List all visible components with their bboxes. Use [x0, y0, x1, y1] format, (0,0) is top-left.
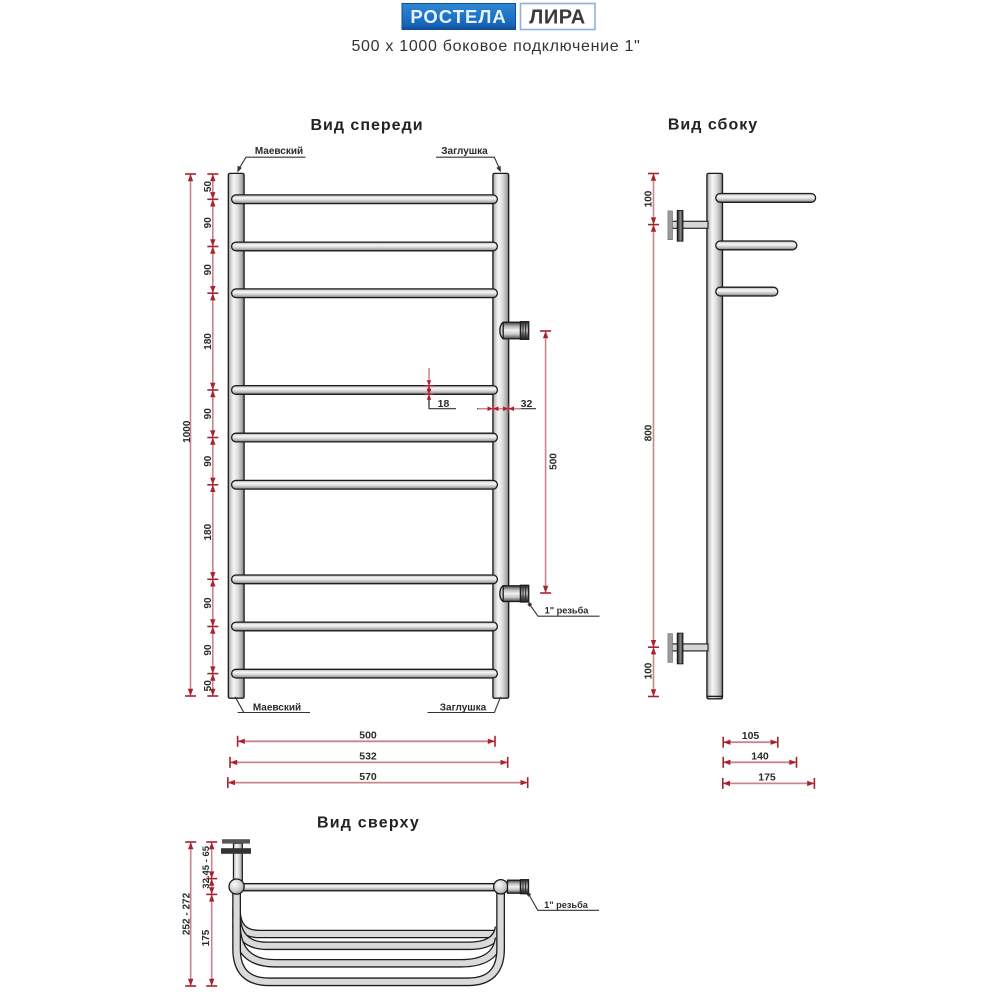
svg-text:90: 90	[203, 644, 214, 656]
svg-text:140: 140	[751, 750, 769, 762]
svg-text:90: 90	[203, 455, 214, 467]
svg-text:1" резьба: 1" резьба	[544, 900, 589, 910]
svg-text:1" резьба: 1" резьба	[545, 606, 590, 616]
svg-text:532: 532	[359, 751, 377, 763]
svg-text:Вид сбоку: Вид сбоку	[668, 117, 758, 134]
svg-text:180: 180	[203, 333, 214, 350]
svg-text:Заглушка: Заглушка	[441, 146, 488, 157]
svg-text:1000: 1000	[182, 420, 193, 443]
svg-text:32.45 - 65: 32.45 - 65	[201, 845, 212, 888]
svg-text:Вид сверху: Вид сверху	[317, 815, 420, 832]
svg-text:500: 500	[549, 453, 560, 470]
svg-text:50: 50	[203, 680, 214, 692]
svg-text:18: 18	[438, 398, 450, 410]
svg-text:Маевский: Маевский	[253, 702, 301, 713]
svg-text:180: 180	[203, 523, 214, 540]
svg-text:175: 175	[201, 929, 212, 946]
svg-text:32: 32	[521, 398, 533, 410]
svg-text:Вид спереди: Вид спереди	[310, 117, 423, 134]
svg-text:570: 570	[359, 771, 377, 783]
svg-text:90: 90	[203, 264, 214, 276]
svg-text:100: 100	[644, 190, 655, 207]
svg-text:90: 90	[203, 217, 214, 229]
svg-text:90: 90	[203, 597, 214, 609]
svg-text:500: 500	[359, 730, 377, 742]
svg-text:100: 100	[644, 662, 655, 679]
svg-text:90: 90	[203, 408, 214, 420]
svg-text:252 - 272: 252 - 272	[181, 892, 192, 935]
svg-text:800: 800	[644, 424, 655, 441]
svg-text:Маевский: Маевский	[255, 146, 303, 157]
svg-text:50: 50	[203, 181, 214, 193]
svg-text:500 x 1000 боковое подключение: 500 x 1000 боковое подключение 1"	[351, 38, 640, 55]
svg-text:105: 105	[742, 730, 760, 742]
svg-text:175: 175	[758, 771, 776, 783]
svg-text:РОСТЕЛА: РОСТЕЛА	[410, 6, 506, 27]
svg-text:ЛИРА: ЛИРА	[529, 7, 585, 29]
svg-text:Заглушка: Заглушка	[440, 702, 487, 713]
